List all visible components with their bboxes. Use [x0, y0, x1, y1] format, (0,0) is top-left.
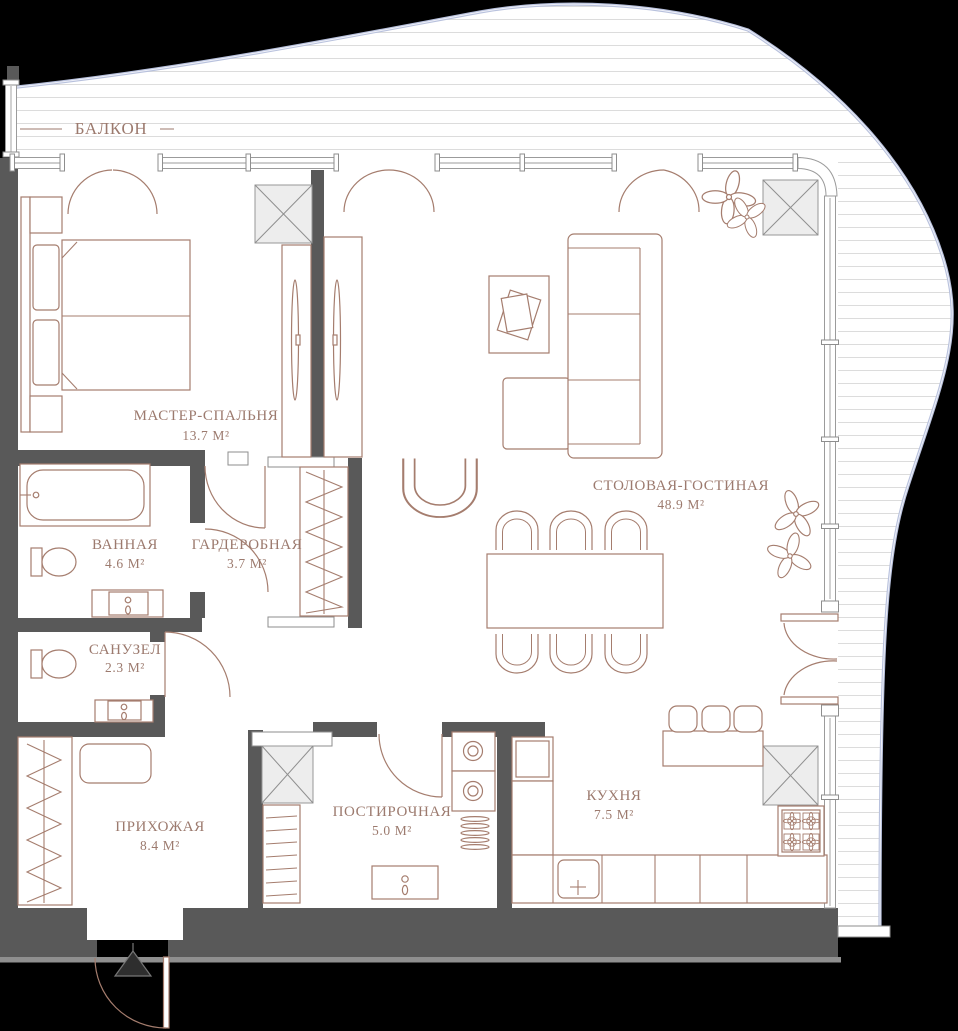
- svg-text:7.5 М²: 7.5 М²: [594, 807, 634, 822]
- bar-stool: [734, 706, 762, 732]
- washer-dryer-stack: [452, 732, 495, 811]
- nightstand: [30, 197, 62, 233]
- coffee-table: [489, 276, 549, 353]
- bar-stool: [702, 706, 730, 732]
- bed-headboard: [21, 197, 30, 432]
- svg-text:КУХНЯ: КУХНЯ: [587, 788, 642, 804]
- svg-text:8.4 М²: 8.4 М²: [140, 838, 180, 853]
- dining-table: [487, 554, 663, 628]
- svg-text:3.7 М²: 3.7 М²: [227, 556, 267, 571]
- svg-text:4.6 М²: 4.6 М²: [105, 556, 145, 571]
- tv-console-living: [324, 237, 362, 457]
- kitchen-sink: [558, 860, 599, 898]
- svg-text:5.0 М²: 5.0 М²: [372, 823, 412, 838]
- toilet: [31, 548, 76, 576]
- bar-counter: [663, 731, 763, 766]
- svg-text:2.3 М²: 2.3 М²: [105, 660, 145, 675]
- dining-chair: [550, 511, 592, 550]
- wardrobe-rail: [300, 467, 348, 616]
- dining-chair: [605, 634, 647, 673]
- bathtub: [20, 464, 150, 526]
- svg-text:СТОЛОВАЯ-ГОСТИНАЯ: СТОЛОВАЯ-ГОСТИНАЯ: [593, 478, 769, 494]
- toilet: [31, 650, 76, 678]
- entrance-arrow-icon: [115, 951, 151, 976]
- shaft-bedroom: [255, 185, 312, 243]
- svg-text:ПОСТИРОЧНАЯ: ПОСТИРОЧНАЯ: [333, 804, 452, 820]
- shelf-closet: [263, 805, 300, 903]
- sofa-chaise: [503, 378, 570, 449]
- vanity-sink: [92, 590, 163, 617]
- shaft-kitchen: [763, 746, 818, 805]
- tall-cabinet: [512, 781, 553, 855]
- dining-chair: [605, 511, 647, 550]
- dining-chair: [550, 634, 592, 673]
- svg-text:ПРИХОЖАЯ: ПРИХОЖАЯ: [115, 819, 205, 835]
- floor-plan-canvas: БАЛКОН МАСТЕР-СПАЛЬНЯ 13.7 М² ВАННАЯ 4.6…: [0, 0, 958, 1031]
- pillow: [33, 320, 59, 385]
- svg-text:МАСТЕР-СПАЛЬНЯ: МАСТЕР-СПАЛЬНЯ: [134, 408, 279, 424]
- entrance-door: [95, 943, 169, 1028]
- apartment-floor-plan: БАЛКОН МАСТЕР-СПАЛЬНЯ 13.7 М² ВАННАЯ 4.6…: [0, 0, 958, 1031]
- vanity-sink: [95, 700, 153, 722]
- hallway-closet: [18, 737, 72, 905]
- svg-text:ВАННАЯ: ВАННАЯ: [92, 537, 158, 553]
- svg-text:48.9 М²: 48.9 М²: [657, 497, 704, 512]
- shaft-living: [763, 180, 818, 235]
- dining-chair: [496, 511, 538, 550]
- balcony-end-cap: [838, 926, 890, 937]
- svg-text:ГАРДЕРОБНАЯ: ГАРДЕРОБНАЯ: [192, 537, 303, 553]
- bar-stool: [669, 706, 697, 732]
- bench: [80, 744, 151, 783]
- dining-chair: [496, 634, 538, 673]
- tv-console-bedroom: [282, 245, 311, 457]
- pillow: [33, 245, 59, 310]
- armchair: [403, 459, 477, 518]
- stove: [778, 806, 824, 856]
- svg-text:БАЛКОН: БАЛКОН: [75, 119, 147, 138]
- nightstand: [30, 396, 62, 432]
- laundry-sink: [372, 866, 438, 899]
- svg-text:САНУЗЕЛ: САНУЗЕЛ: [89, 642, 161, 658]
- shaft-laundry: [262, 746, 313, 803]
- entrance-vestibule: [87, 908, 183, 940]
- sofa: [568, 234, 662, 458]
- svg-text:13.7 М²: 13.7 М²: [182, 428, 229, 443]
